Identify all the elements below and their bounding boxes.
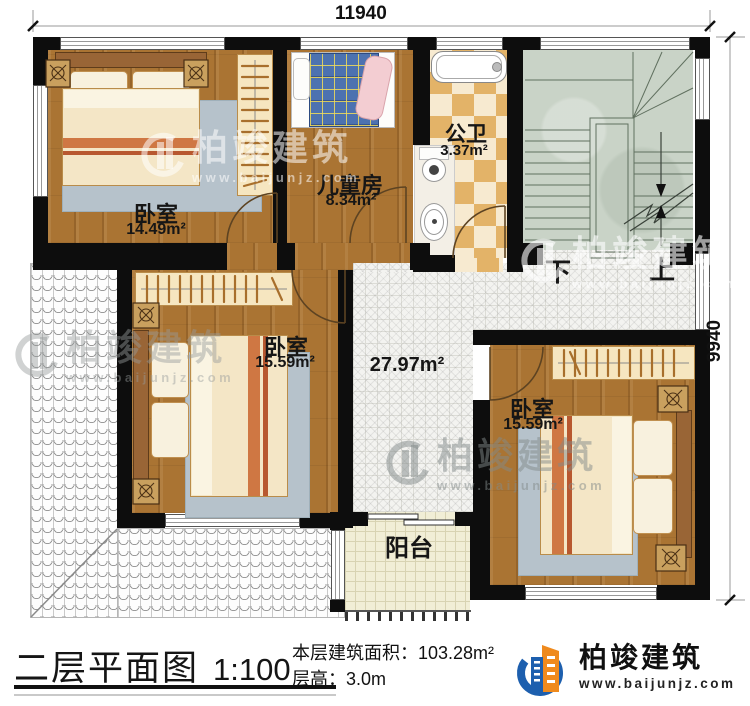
stairs-down-label: 下 bbox=[545, 252, 571, 289]
dimension-top: 11940 bbox=[335, 3, 387, 25]
floor-height-value: 3.0m bbox=[346, 669, 386, 689]
title-underline-thin bbox=[14, 694, 336, 696]
floorplan-page: 11940 9940 卧室 14.49m² 儿童房 8.34m² 公卫 3.37… bbox=[0, 0, 750, 706]
floor-height-label: 层高： bbox=[292, 669, 346, 689]
title-underline bbox=[14, 685, 336, 689]
room-area-bedroom3: 15.59m² bbox=[503, 416, 563, 434]
dimension-right: 9940 bbox=[704, 320, 726, 362]
room-area-hall: 27.97m² bbox=[370, 354, 445, 377]
company-logo-text: 柏竣建筑 www.baijunjz.com bbox=[579, 643, 736, 692]
drawing-scale: 1:100 bbox=[213, 652, 291, 687]
floor-area-value: 103.28m² bbox=[418, 643, 494, 663]
floor-area-label: 本层建筑面积： bbox=[292, 643, 418, 663]
floor-stats: 本层建筑面积：103.28m² 层高：3.0m bbox=[292, 640, 494, 692]
floorplan-drawing: 11940 9940 卧室 14.49m² 儿童房 8.34m² 公卫 3.37… bbox=[0, 0, 750, 630]
room-label-balcony: 阳台 bbox=[385, 528, 433, 563]
floor-area-line: 本层建筑面积：103.28m² bbox=[292, 640, 494, 666]
company-brand: 柏竣建筑 bbox=[579, 643, 736, 674]
linework-overlay bbox=[0, 0, 750, 630]
room-area-bedroom1: 14.49m² bbox=[126, 221, 186, 239]
room-area-bath: 3.37m² bbox=[440, 142, 488, 159]
drawing-title-row: 二层平面图1:100 bbox=[14, 640, 291, 691]
company-logo-block: 柏竣建筑 www.baijunjz.com bbox=[515, 636, 736, 698]
stairs-up-label: 上 bbox=[649, 250, 675, 287]
title-block: 二层平面图1:100 本层建筑面积：103.28m² 层高：3.0m 柏竣建筑 … bbox=[0, 630, 750, 706]
drawing-title: 二层平面图 bbox=[14, 649, 199, 688]
room-area-bedroom2: 15.59m² bbox=[255, 354, 315, 372]
room-area-kids: 8.34m² bbox=[326, 192, 377, 210]
company-logo-icon bbox=[515, 636, 569, 698]
company-url: www.baijunjz.com bbox=[579, 676, 736, 691]
floor-height-line: 层高：3.0m bbox=[292, 666, 494, 692]
